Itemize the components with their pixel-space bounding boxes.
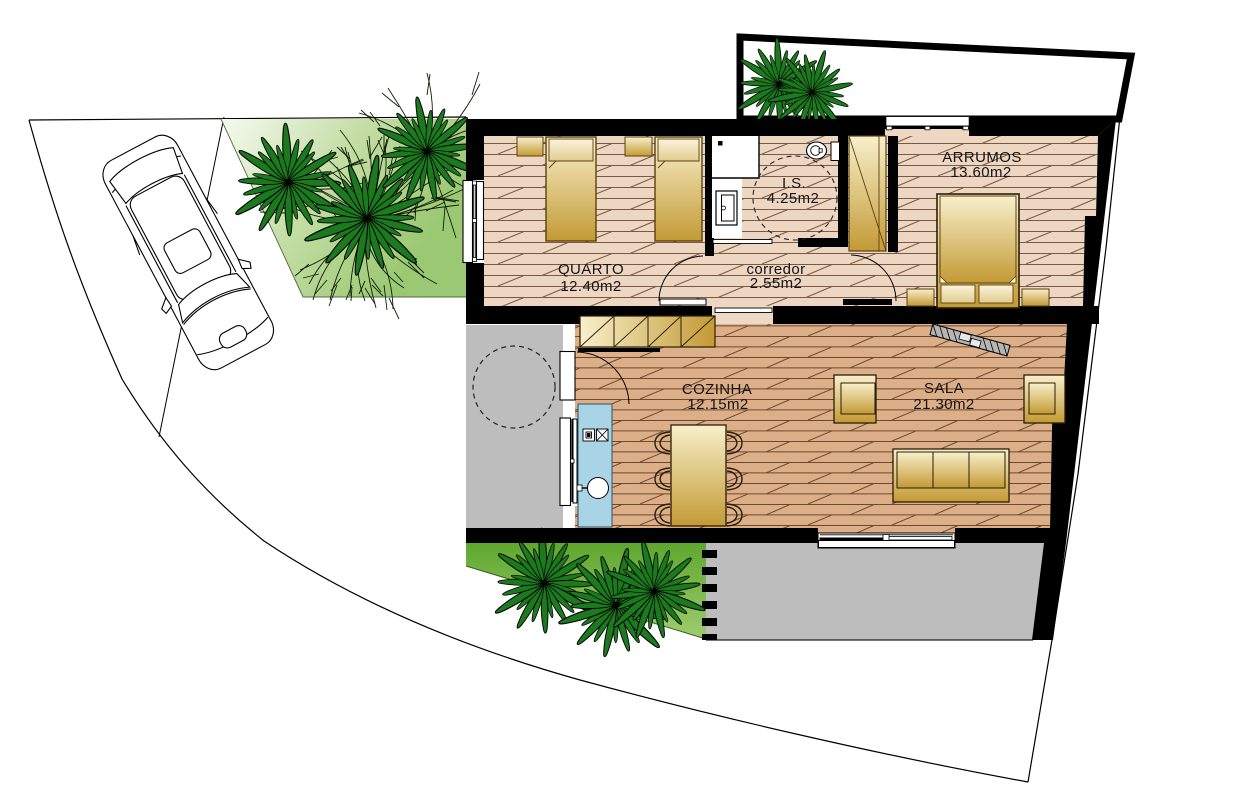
svg-text:2.55m2: 2.55m2	[750, 275, 802, 292]
svg-text:SALA: SALA	[924, 380, 964, 397]
svg-text:12.15m2: 12.15m2	[687, 396, 748, 413]
svg-text:21.30m2: 21.30m2	[913, 396, 974, 413]
svg-text:4.25m2: 4.25m2	[767, 190, 819, 207]
svg-text:12.40m2: 12.40m2	[560, 278, 621, 295]
svg-text:13.60m2: 13.60m2	[950, 164, 1011, 181]
svg-text:QUARTO: QUARTO	[558, 261, 624, 278]
